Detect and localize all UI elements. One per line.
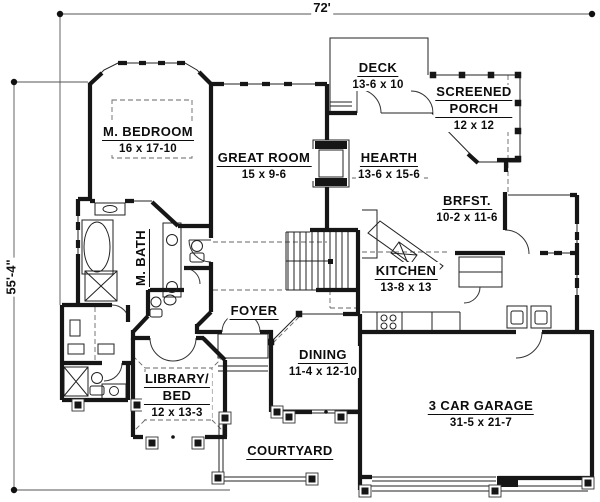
- room-label-m-bedroom: M. BEDROOM 16 x 17-10: [100, 123, 196, 155]
- room-size: 11-4 x 12-10: [289, 366, 357, 378]
- room-label-screened-porch: SCREENED PORCH 12 x 12: [433, 85, 514, 132]
- room-size: 12 x 12: [435, 120, 512, 132]
- room-size: 13-8 x 13: [375, 282, 438, 294]
- room-size: 16 x 17-10: [102, 143, 194, 155]
- room-label-library-bed: LIBRARY/ BED 12 x 13-3: [142, 372, 212, 419]
- room-label-hearth: HEARTH 13-6 x 15-6: [356, 149, 422, 181]
- room-label-foyer: FOYER: [228, 302, 281, 320]
- room-label-m-bath: M. BATH: [132, 227, 150, 289]
- room-label-courtyard: COURTYARD: [244, 442, 335, 460]
- room-label-dining: DINING 11-4 x 12-10: [287, 346, 359, 378]
- room-label-garage: 3 CAR GARAGE 31-5 x 21-7: [426, 397, 536, 429]
- room-name: M. BEDROOM: [102, 125, 194, 141]
- room-size: 31-5 x 21-7: [428, 417, 534, 429]
- room-name: COURTYARD: [246, 444, 333, 460]
- room-label-brfst: BRFST. 10-2 x 11-6: [434, 192, 500, 224]
- room-name: GREAT ROOM: [217, 151, 312, 167]
- room-name: BED: [144, 389, 210, 405]
- room-size: 13-6 x 15-6: [358, 169, 420, 181]
- dimension-label-width: 72': [311, 0, 333, 15]
- room-label-deck: DECK 13-6 x 10: [350, 59, 405, 91]
- room-name: 3 CAR GARAGE: [428, 399, 534, 415]
- room-size: 10-2 x 11-6: [436, 212, 498, 224]
- room-name: SCREENED: [435, 85, 512, 101]
- floor-plan: 72' 55'-4" M. BEDROOM 16 x 17-10 GREAT R…: [0, 0, 600, 502]
- room-name: M. BATH: [134, 229, 150, 287]
- room-name: FOYER: [230, 304, 279, 320]
- room-name: DECK: [358, 61, 398, 77]
- room-label-kitchen: KITCHEN 13-8 x 13: [373, 262, 440, 294]
- dimension-label-height: 55'-4": [4, 257, 19, 296]
- room-size: 12 x 13-3: [144, 407, 210, 419]
- room-label-great-room: GREAT ROOM 15 x 9-6: [215, 149, 314, 181]
- room-name: LIBRARY/: [144, 372, 210, 388]
- room-size: 15 x 9-6: [217, 169, 312, 181]
- room-name: DINING: [298, 348, 348, 364]
- room-name: KITCHEN: [375, 264, 438, 280]
- room-name: BRFST.: [442, 194, 492, 210]
- room-name: HEARTH: [360, 151, 419, 167]
- room-size: 13-6 x 10: [352, 79, 403, 91]
- room-name: PORCH: [435, 102, 512, 118]
